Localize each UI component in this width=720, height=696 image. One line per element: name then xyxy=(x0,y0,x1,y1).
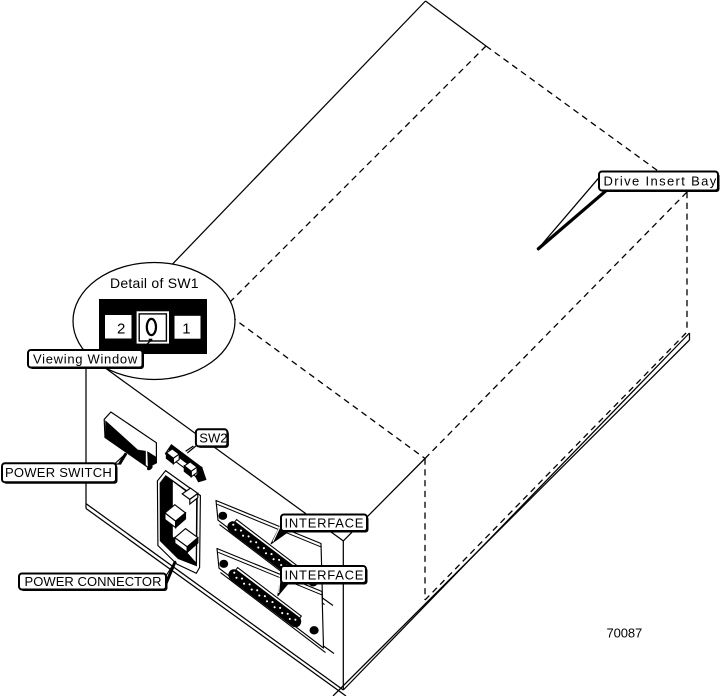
svg-text:2: 2 xyxy=(117,320,125,337)
svg-text:1: 1 xyxy=(182,320,190,337)
svg-text:Viewing Window: Viewing Window xyxy=(33,351,138,366)
svg-text:Drive Insert Bay: Drive Insert Bay xyxy=(604,174,718,189)
svg-text:POWER CONNECTOR: POWER CONNECTOR xyxy=(25,574,162,589)
svg-text:70087: 70087 xyxy=(607,626,643,641)
svg-text:SW2: SW2 xyxy=(199,430,227,445)
svg-text:Detail of SW1: Detail of SW1 xyxy=(110,275,199,291)
svg-text:INTERFACE: INTERFACE xyxy=(285,516,365,531)
svg-text:POWER SWITCH: POWER SWITCH xyxy=(5,465,112,480)
svg-text:INTERFACE: INTERFACE xyxy=(285,568,365,583)
